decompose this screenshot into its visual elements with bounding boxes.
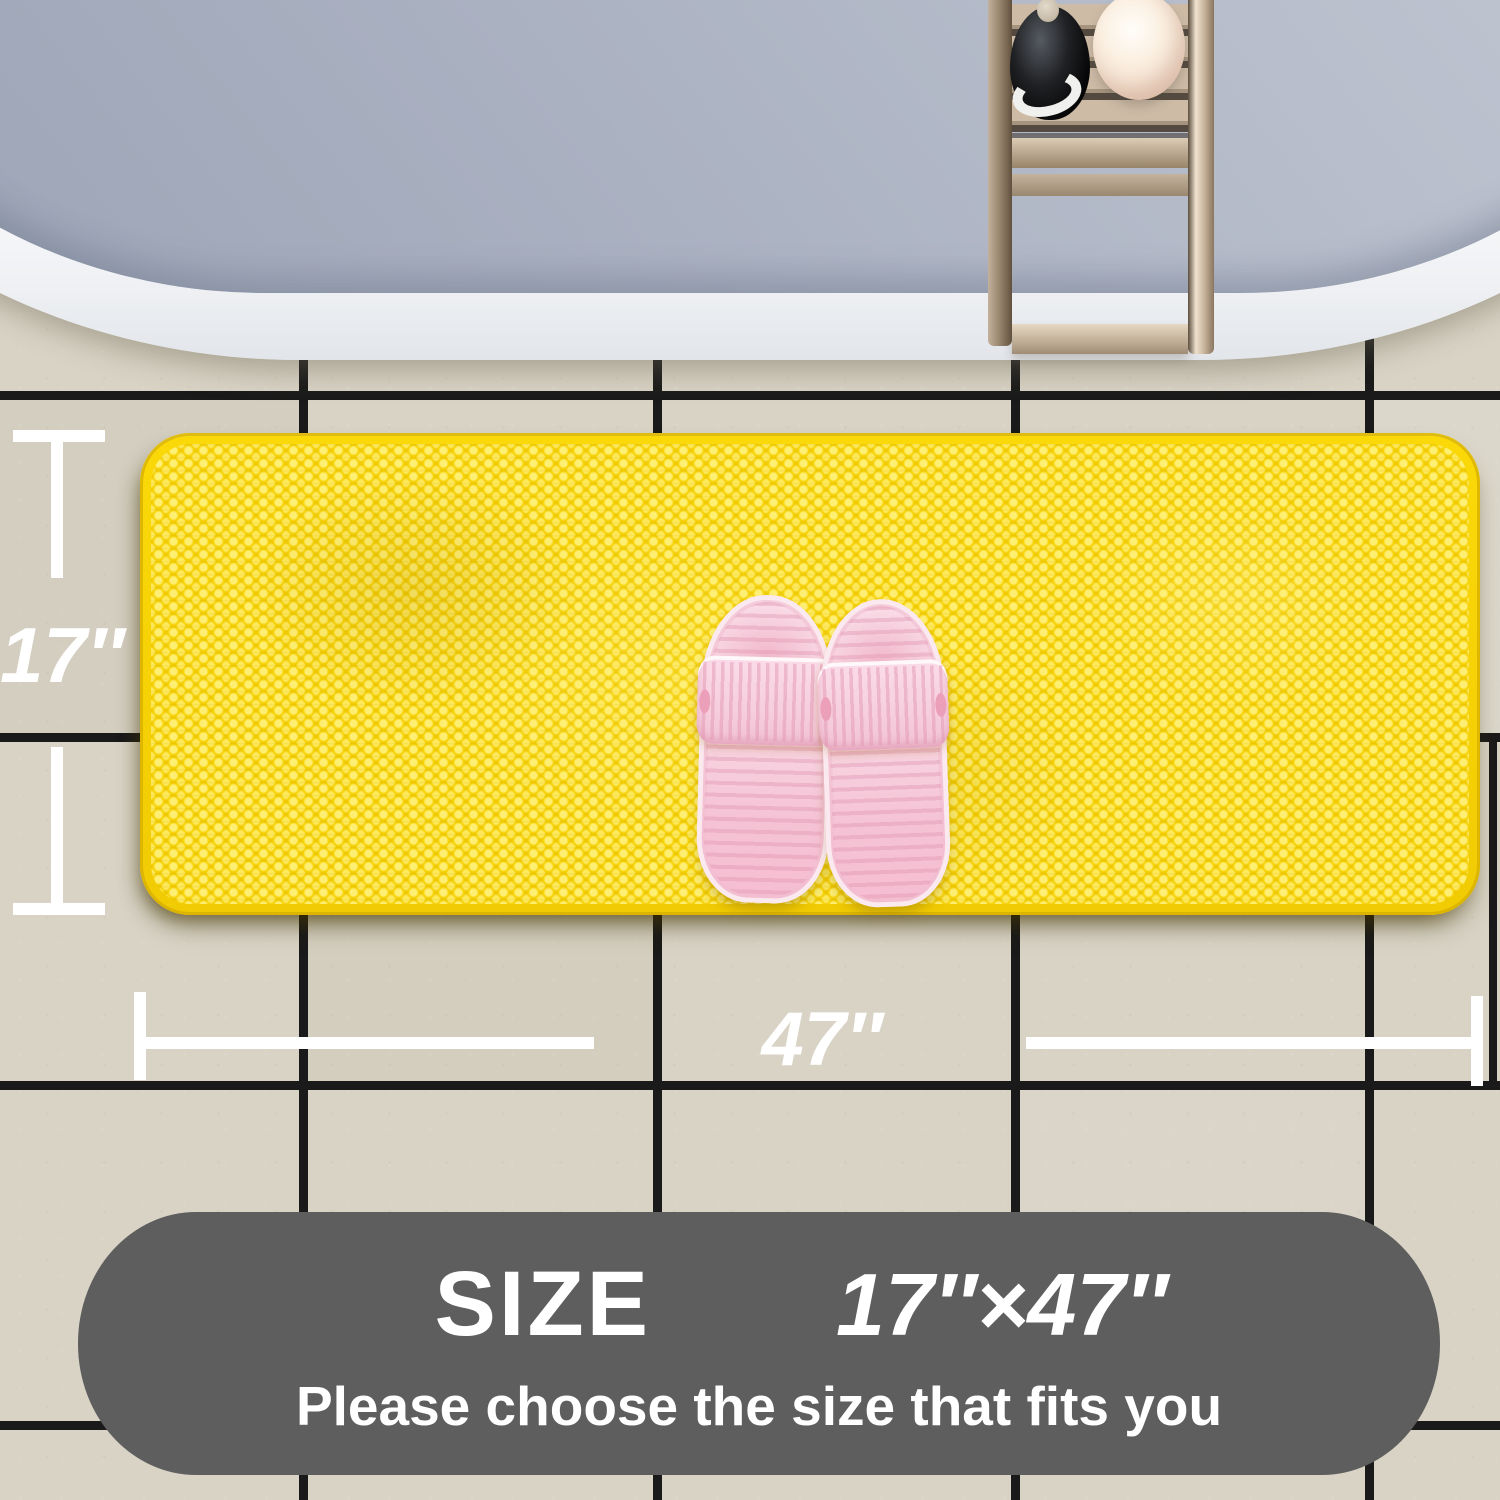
height-dimension-label: 17″ — [0, 612, 132, 698]
dimension-cap — [13, 430, 105, 442]
slipper-footbed — [818, 597, 953, 909]
dimension-cap — [1471, 996, 1483, 1086]
caddy-rail — [988, 0, 1012, 346]
slipper-strap-ribs — [701, 661, 831, 742]
caddy-crossbar — [1012, 174, 1188, 196]
width-dimension-label: 47″ — [742, 1000, 902, 1080]
slipper-strap — [817, 659, 950, 751]
size-value: 17″×47″ — [836, 1261, 1167, 1349]
dimension-line — [1026, 1037, 1471, 1049]
slipper-right — [818, 597, 953, 909]
slipper-strap — [696, 655, 836, 747]
grout-line-horizontal — [0, 391, 1500, 400]
caddy-crossbar — [1012, 324, 1188, 354]
grout-line-vertical — [1489, 736, 1497, 1086]
size-title: SIZE — [435, 1258, 651, 1350]
slipper-strap-ribs — [822, 665, 945, 747]
slipper-footbed-ribs — [825, 604, 945, 902]
size-banner-subtitle: Please choose the size that fits you — [78, 1376, 1440, 1437]
dimension-cap — [13, 903, 105, 915]
dimension-line — [146, 1037, 594, 1049]
dimension-line — [51, 442, 63, 578]
slipper-footbed — [695, 593, 835, 904]
dark-bottle — [1010, 6, 1090, 120]
grout-line-horizontal — [0, 1081, 1500, 1090]
slipper-strap-notch — [935, 693, 947, 717]
product-size-image: 17″ 47″ SIZE 17″×47″ Please choose the s… — [0, 0, 1500, 1500]
size-banner-heading: SIZE 17″×47″ — [120, 1258, 1482, 1350]
slipper-left — [695, 593, 835, 904]
caddy-crossbar — [1012, 138, 1188, 168]
slipper-footbed-ribs — [702, 601, 828, 898]
bathtub-water — [0, 0, 1500, 293]
dimension-cap — [134, 992, 146, 1080]
dimension-line — [51, 747, 63, 903]
bath-caddy — [985, 0, 1215, 360]
caddy-rail — [1188, 0, 1214, 354]
size-banner: SIZE 17″×47″ Please choose the size that… — [78, 1212, 1440, 1475]
